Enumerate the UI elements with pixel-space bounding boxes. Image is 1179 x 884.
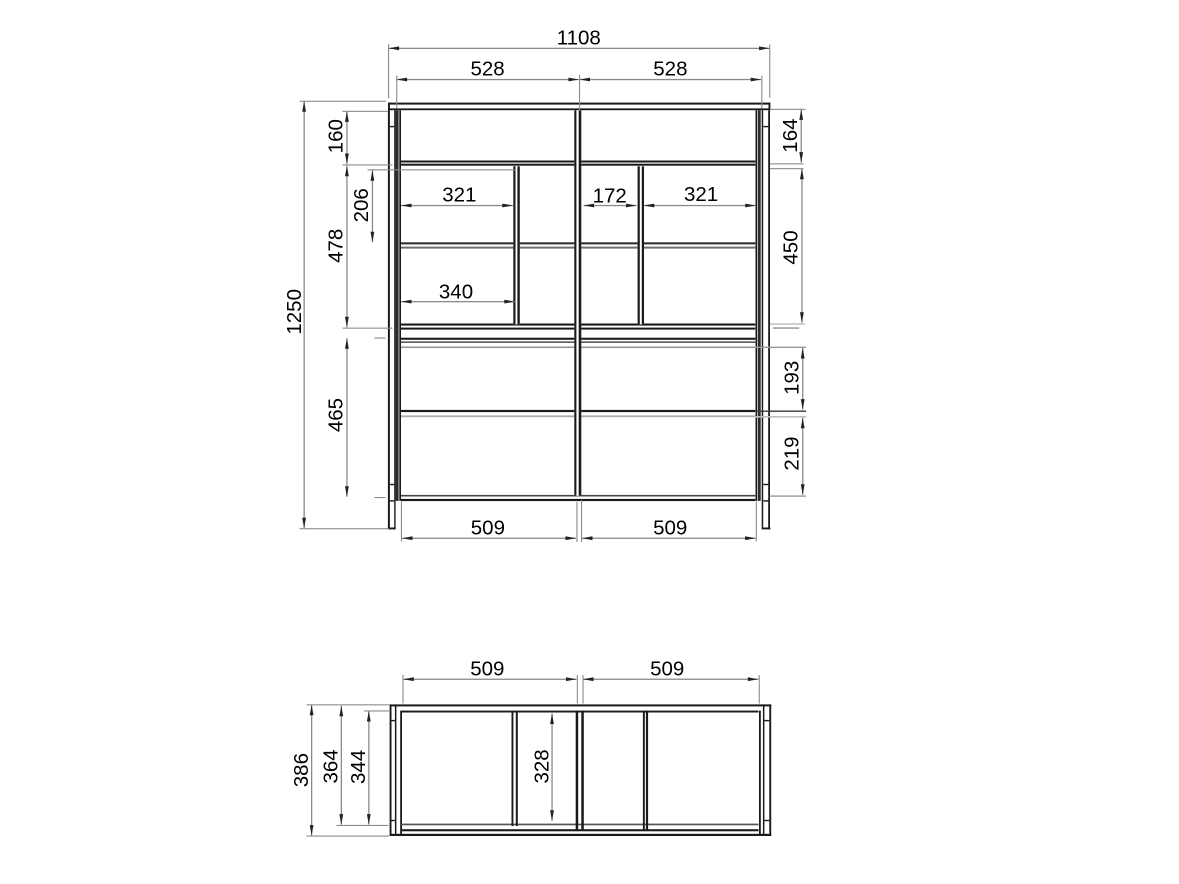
svg-text:328: 328 [530,749,553,783]
svg-text:321: 321 [684,183,718,206]
svg-text:219: 219 [780,436,803,470]
svg-text:528: 528 [653,57,687,80]
svg-text:478: 478 [325,229,348,263]
svg-text:1108: 1108 [557,26,601,49]
svg-text:509: 509 [650,657,684,680]
svg-text:528: 528 [470,57,504,80]
svg-text:206: 206 [350,188,373,222]
svg-text:1250: 1250 [283,289,306,335]
svg-text:340: 340 [439,280,473,303]
svg-text:509: 509 [470,657,504,680]
svg-text:509: 509 [471,516,505,539]
svg-text:364: 364 [320,749,343,783]
svg-text:172: 172 [593,185,627,208]
svg-text:160: 160 [325,119,348,153]
svg-text:164: 164 [779,118,802,152]
svg-text:321: 321 [442,183,476,206]
svg-text:344: 344 [347,750,370,784]
svg-text:465: 465 [325,398,348,432]
svg-text:386: 386 [290,753,313,787]
svg-text:450: 450 [779,230,802,264]
svg-text:509: 509 [653,516,687,539]
svg-text:193: 193 [780,361,803,395]
